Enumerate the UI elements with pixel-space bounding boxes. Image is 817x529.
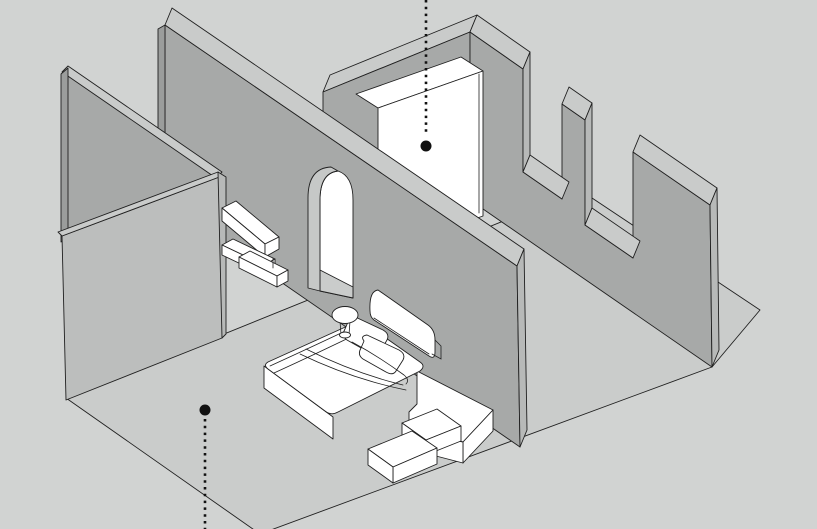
marker-dot[interactable] bbox=[421, 141, 432, 152]
arched-doorway bbox=[308, 167, 353, 298]
bedroom-isometric-illustration bbox=[0, 0, 817, 529]
crenellated-wall-end-cap bbox=[710, 188, 719, 367]
back-left-wall-cap bbox=[61, 68, 68, 242]
table-base bbox=[340, 332, 351, 338]
notch-side-2 bbox=[585, 103, 592, 225]
notch-side-1 bbox=[523, 52, 530, 172]
marker-dot[interactable] bbox=[200, 405, 211, 416]
scene-stage bbox=[0, 0, 817, 529]
table-top bbox=[332, 307, 358, 324]
